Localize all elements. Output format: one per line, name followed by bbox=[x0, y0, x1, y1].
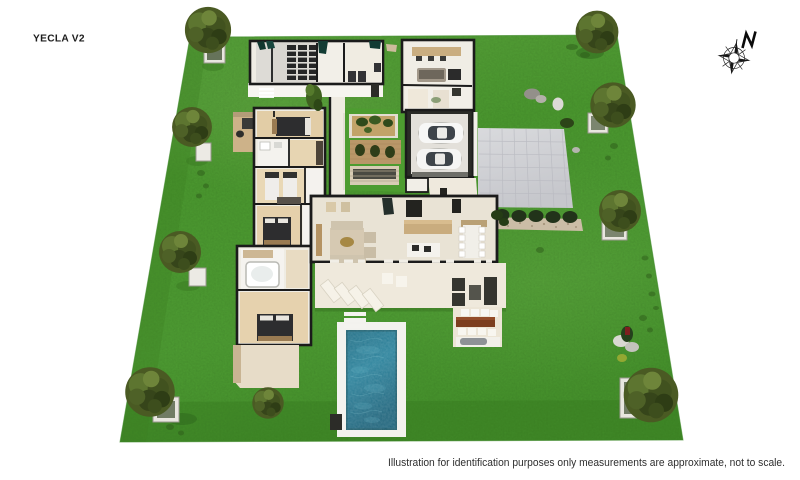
svg-text:YECLA V2: YECLA V2 bbox=[33, 34, 85, 45]
svg-text:Illustration for identificatio: Illustration for identification purposes… bbox=[388, 457, 785, 469]
